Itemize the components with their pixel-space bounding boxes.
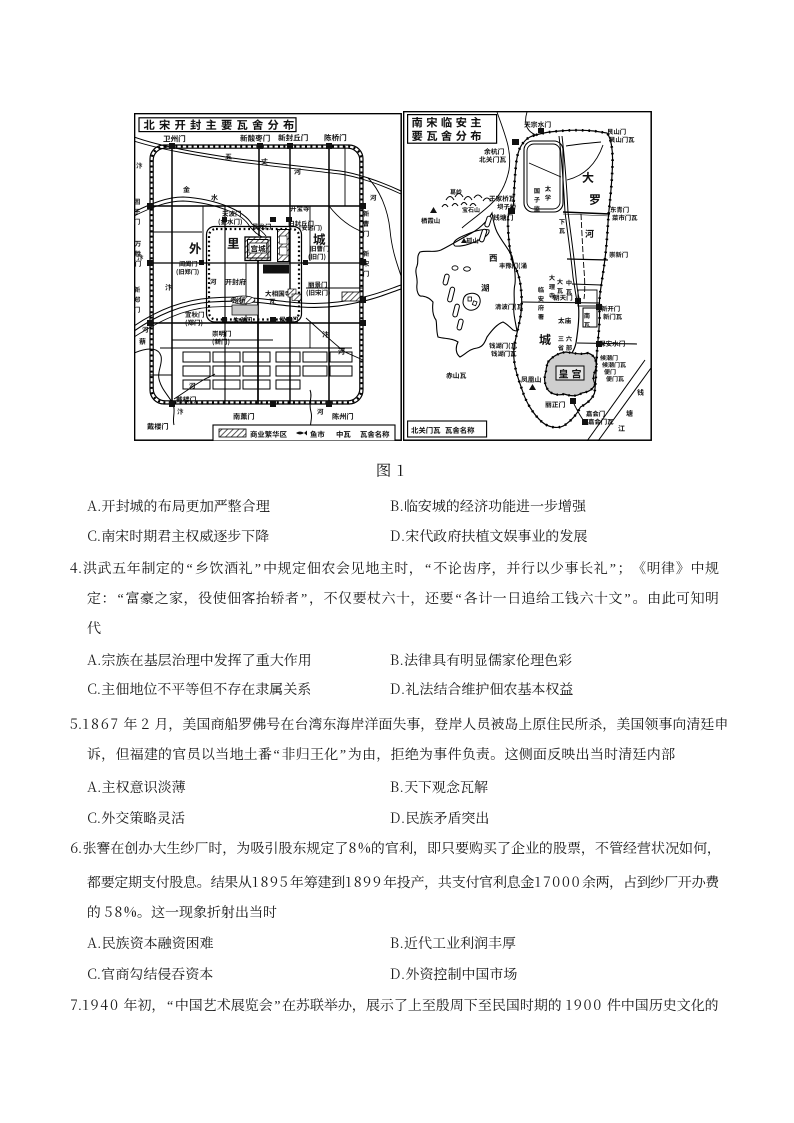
svg-text:戴楼门: 戴楼门	[176, 394, 197, 404]
svg-text:汴: 汴	[165, 283, 172, 293]
svg-text:钱湖门瓦: 钱湖门瓦	[491, 349, 517, 358]
svg-text:栖霞山: 栖霞山	[421, 216, 440, 225]
svg-text:新酸枣门: 新酸枣门	[240, 133, 271, 144]
svg-text:葛岭: 葛岭	[450, 187, 462, 196]
svg-text:新封丘门: 新封丘门	[278, 133, 309, 144]
svg-text:赤山瓦: 赤山瓦	[446, 370, 467, 380]
svg-text:瓦舍名称: 瓦舍名称	[360, 429, 390, 440]
svg-text:中瓦: 中瓦	[565, 278, 574, 296]
svg-text:罗: 罗	[589, 191, 601, 208]
svg-text:北关门瓦: 北关门瓦	[411, 425, 441, 436]
svg-text:景龙门: 景龙门	[252, 221, 272, 231]
svg-text:清波门(瓦: 清波门(瓦	[495, 302, 524, 311]
svg-text:丈: 丈	[261, 157, 268, 167]
svg-text:万胜门: 万胜门	[134, 238, 143, 268]
svg-text:陈州门: 陈州门	[332, 412, 354, 422]
svg-text:河: 河	[338, 347, 345, 357]
svg-text:河: 河	[142, 324, 149, 334]
svg-text:州桥: 州桥	[232, 295, 246, 305]
svg-text:丽正门: 丽正门	[545, 399, 566, 409]
svg-text:天宗水门: 天宗水门	[524, 119, 551, 129]
svg-text:河: 河	[210, 276, 217, 286]
svg-text:下瓦: 下瓦	[558, 217, 567, 235]
svg-text:外: 外	[189, 238, 202, 257]
svg-text:河: 河	[370, 192, 377, 202]
svg-text:丰豫门(涌: 丰豫门(涌	[499, 261, 527, 270]
svg-text:江: 江	[618, 424, 625, 434]
svg-text:商业繁华区: 商业繁华区	[250, 429, 288, 440]
svg-text:塘: 塘	[626, 409, 633, 419]
svg-text:六部: 六部	[565, 334, 574, 352]
svg-text:新门瓦: 新门瓦	[603, 312, 623, 321]
svg-text:朱雀门: 朱雀门	[233, 315, 253, 325]
svg-text:北关门瓦: 北关门瓦	[479, 154, 506, 164]
svg-text:凤凰山: 凤凰山	[521, 374, 542, 384]
svg-text:陈桥门: 陈桥门	[324, 133, 347, 144]
svg-text:大: 大	[582, 169, 594, 186]
svg-text:湖: 湖	[481, 282, 490, 294]
svg-text:瓦: 瓦	[269, 296, 276, 306]
svg-text:汴: 汴	[136, 160, 143, 170]
svg-text:新曹门: 新曹门	[361, 208, 371, 238]
svg-text:(旧宋门): (旧宋门)	[306, 287, 330, 297]
svg-text:城: 城	[539, 331, 551, 348]
svg-text:要瓦舍分布: 要瓦舍分布	[412, 128, 486, 144]
svg-text:开封府: 开封府	[225, 278, 246, 288]
svg-text:大瓦: 大瓦	[556, 277, 565, 295]
svg-text:崇新门: 崇新门	[609, 250, 628, 259]
svg-text:从家瓦: 从家瓦	[265, 264, 285, 274]
svg-text:水: 水	[211, 193, 218, 203]
svg-text:南薰门: 南薰门	[233, 412, 255, 422]
svg-text:南瓦: 南瓦	[583, 311, 592, 329]
svg-text:汴: 汴	[177, 406, 184, 416]
svg-text:鱼市: 鱼市	[310, 429, 325, 440]
svg-text:(旧门): (旧门)	[308, 251, 326, 261]
svg-text:孤山: 孤山	[466, 236, 479, 245]
svg-text:(金水门): (金水门)	[218, 216, 242, 226]
svg-text:(安远门): (安远门)	[299, 223, 322, 232]
svg-text:菜市门瓦: 菜市门瓦	[612, 213, 638, 222]
svg-text:戴楼门: 戴楼门	[147, 422, 169, 432]
svg-text:艮山门瓦: 艮山门瓦	[609, 135, 635, 144]
svg-text:保康门: 保康门	[279, 314, 299, 324]
svg-text:河: 河	[317, 406, 324, 416]
svg-text:新郑门: 新郑门	[134, 284, 142, 314]
svg-text:河: 河	[189, 380, 196, 390]
svg-text:瓦舍名称: 瓦舍名称	[445, 425, 475, 436]
svg-text:临安府署: 临安府署	[537, 285, 546, 321]
svg-text:里: 里	[227, 233, 240, 252]
svg-text:太庙: 太庙	[558, 315, 572, 325]
svg-text:固子门: 固子门	[134, 196, 142, 226]
svg-text:汴: 汴	[322, 330, 329, 340]
svg-text:太学: 太学	[544, 184, 553, 202]
svg-text:金: 金	[183, 185, 190, 195]
svg-text:宫城: 宫城	[251, 244, 267, 255]
svg-text:(郑门): (郑门)	[185, 317, 203, 327]
svg-text:宝石山: 宝石山	[462, 205, 480, 214]
svg-text:河: 河	[294, 167, 301, 177]
svg-text:蔡: 蔡	[139, 337, 146, 347]
svg-text:皇宫: 皇宫	[559, 366, 585, 381]
svg-text:河: 河	[585, 227, 594, 240]
svg-text:保安水门: 保安水门	[599, 338, 626, 348]
svg-text:(新门): (新门)	[212, 336, 230, 346]
svg-text:(旧郑门): (旧郑门)	[176, 267, 199, 276]
svg-text:开宝寺: 开宝寺	[290, 203, 310, 213]
svg-text:中瓦: 中瓦	[336, 429, 351, 440]
svg-text:五: 五	[225, 152, 232, 162]
svg-text:国子监: 国子监	[533, 186, 542, 213]
svg-text:新宋门: 新宋门	[361, 248, 371, 278]
svg-text:西: 西	[489, 252, 498, 264]
svg-text:北宋开封主要瓦舍分布: 北宋开封主要瓦舍分布	[144, 117, 299, 133]
svg-text:卫州门: 卫州门	[163, 134, 186, 145]
svg-text:钱: 钱	[637, 388, 644, 398]
svg-text:便门瓦: 便门瓦	[606, 374, 624, 383]
